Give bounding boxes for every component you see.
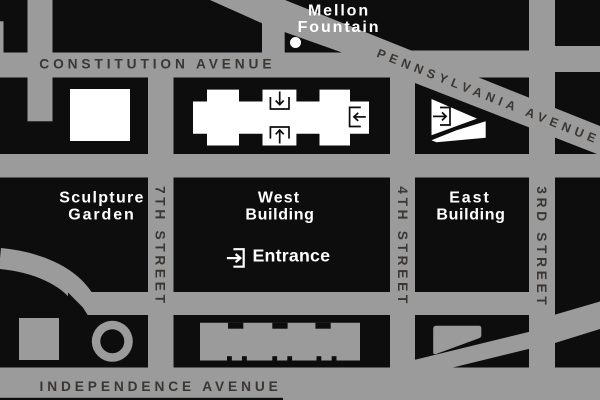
svg-text:West: West [258, 189, 300, 206]
svg-text:Garden: Garden [68, 207, 135, 224]
svg-text:CONSTITUTION AVENUE: CONSTITUTION AVENUE [39, 57, 275, 72]
svg-text:Building: Building [436, 207, 505, 224]
svg-text:Sculpture: Sculpture [59, 189, 145, 206]
svg-text:East: East [449, 189, 491, 206]
svg-text:3RD STREET: 3RD STREET [534, 186, 549, 308]
svg-text:4TH STREET: 4TH STREET [395, 186, 410, 307]
svg-text:Entrance: Entrance [253, 245, 331, 265]
svg-text:INDEPENDENCE AVENUE: INDEPENDENCE AVENUE [40, 379, 282, 394]
svg-text:Building: Building [245, 207, 314, 224]
svg-text:7TH STREET: 7TH STREET [153, 186, 168, 307]
svg-text:Fountain: Fountain [298, 19, 381, 36]
svg-text:Mellon: Mellon [308, 3, 370, 20]
